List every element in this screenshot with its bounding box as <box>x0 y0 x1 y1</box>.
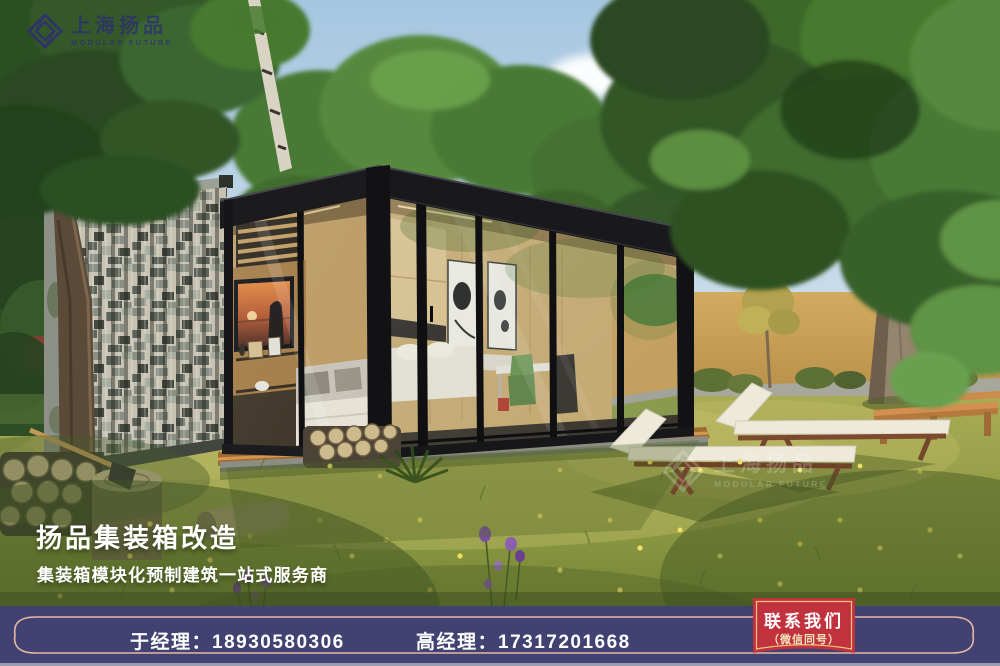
watermark-name-en: MODULAR FUTURE <box>714 479 828 489</box>
brand-name-en: MODULAR FUTURE <box>71 38 173 47</box>
brand-logo-icon <box>26 12 64 50</box>
subheadline: 集装箱模块化预制建筑一站式服务商 <box>37 561 328 586</box>
watermark-logo-icon <box>660 448 706 494</box>
brand-name-cn: 上海扬品 <box>71 15 173 37</box>
contact-2-phone: 17317201668 <box>498 632 631 653</box>
watermark-name-cn: 上海扬品 <box>714 453 828 476</box>
contact-ribbon: 联系我们 （微信同号） <box>753 598 855 660</box>
contact-2-label: 高经理： <box>416 632 498 653</box>
watermark-logo: 上海扬品 MODULAR FUTURE <box>660 448 828 494</box>
headline: 扬品集装箱改造 <box>36 518 239 555</box>
contact-1-phone: 18930580306 <box>212 632 345 653</box>
contact-manager-2: 高经理：17317201668 <box>416 627 631 654</box>
watermark-text: 上海扬品 MODULAR FUTURE <box>714 453 828 488</box>
poster: 上海扬品 MODULAR FUTURE 上海扬品 MODULAR FUTURE … <box>0 0 1000 666</box>
brand-logo: 上海扬品 MODULAR FUTURE <box>26 12 173 50</box>
ribbon-subtitle: （微信同号） <box>753 631 855 647</box>
contact-manager-1: 于经理：18930580306 <box>130 627 345 654</box>
ribbon-title: 联系我们 <box>753 607 855 632</box>
contact-1-label: 于经理： <box>130 632 212 653</box>
brand-logo-text: 上海扬品 MODULAR FUTURE <box>71 15 173 47</box>
